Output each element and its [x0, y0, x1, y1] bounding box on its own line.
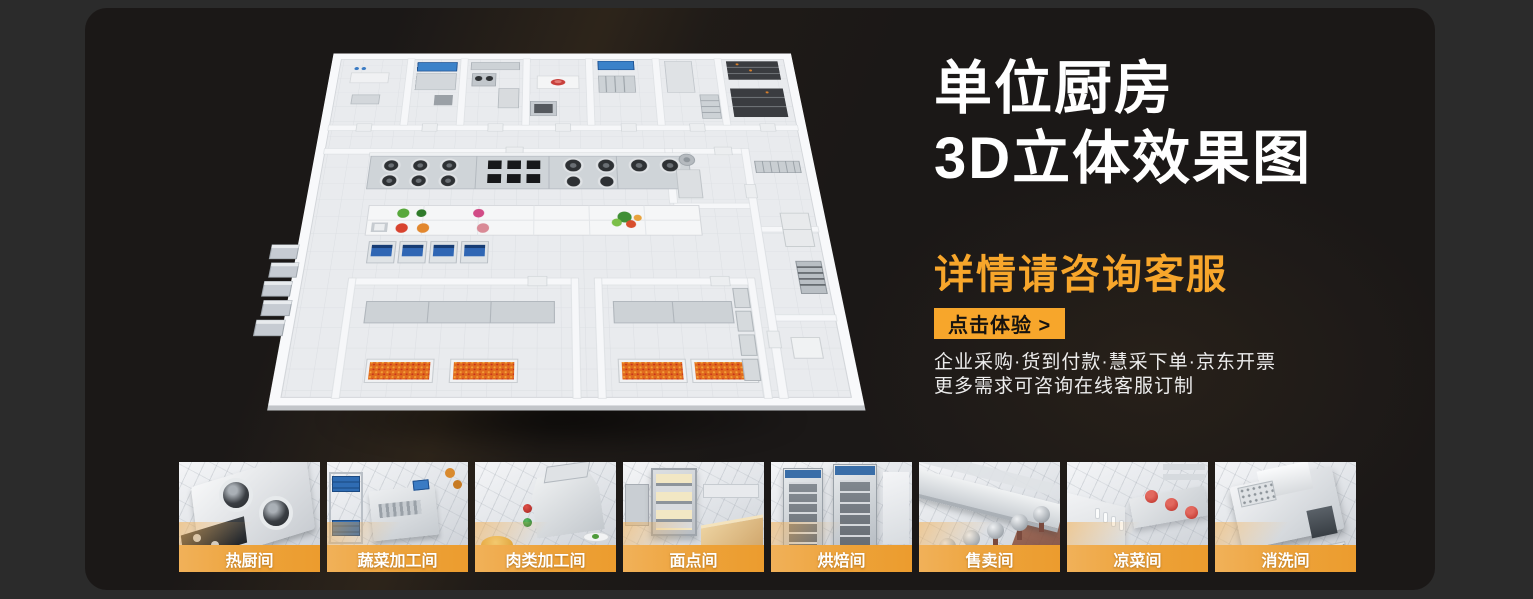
produce: [445, 468, 455, 478]
room-label: 肉类加工间: [505, 547, 585, 571]
room-label: 热厨间: [225, 547, 273, 571]
headline-line1: 单位厨房: [934, 56, 1174, 122]
stool: [1033, 506, 1050, 523]
cta-button[interactable]: 点击体验 >: [934, 308, 1065, 339]
gallery-item-serving-room[interactable]: 售卖间: [919, 462, 1060, 572]
wall-shelf: [1163, 464, 1205, 470]
red-dome-plate: [1145, 490, 1158, 503]
blue-crates: [332, 476, 360, 492]
building: [238, 56, 865, 410]
oven-racks: [840, 480, 870, 552]
produce: [453, 480, 462, 489]
room-label-band: 凉菜间: [1067, 545, 1208, 572]
machine-screen: [413, 479, 430, 491]
room-label: 面点间: [669, 547, 717, 571]
room-label: 消洗间: [1261, 547, 1309, 571]
dishwasher-opening: [1306, 506, 1337, 539]
oven-control-strip: [835, 466, 875, 475]
room-label-band: 肉类加工间: [475, 545, 616, 572]
room-label: 凉菜间: [1113, 547, 1161, 571]
red-dome-plate: [1185, 506, 1198, 519]
prep-table: [365, 205, 702, 235]
red-dome-plate: [1165, 498, 1178, 511]
subtitle: 详情请咨询客服: [934, 242, 1228, 300]
side-cabinet: [625, 484, 649, 526]
room-label: 烘焙间: [817, 547, 865, 571]
gallery-item-vegetable-processing-room[interactable]: 蔬菜加工间: [327, 462, 468, 572]
banner-page: 单位厨房 3D立体效果图 详情请咨询客服 点击体验 > 企业采购·货到付款·慧采…: [0, 0, 1533, 599]
room-label-band: 消洗间: [1215, 545, 1356, 572]
wall-shelf: [1163, 474, 1205, 480]
gallery-item-washing-room[interactable]: 消洗间: [1215, 462, 1356, 572]
room-label-band: 面点间: [623, 545, 764, 572]
room-gallery: 热厨间 蔬菜加工间 肉类加工间: [179, 462, 1356, 572]
plate-food: [592, 534, 599, 539]
gallery-item-baking-room[interactable]: 烘焙间: [771, 462, 912, 572]
room-label: 蔬菜加工间: [357, 547, 437, 571]
wok-pot: [259, 496, 293, 530]
bottle: [1095, 508, 1100, 519]
service-note-line1: 企业采购·货到付款·慧采下单·京东开票: [934, 351, 1276, 375]
red-button: [523, 504, 532, 513]
cook-line: [365, 153, 694, 189]
service-note-line2: 更多需求可咨询在线客服订制: [934, 375, 1194, 399]
corridor-wall: [883, 472, 909, 544]
back-counter: [703, 484, 759, 498]
gallery-item-hot-kitchen-room[interactable]: 热厨间: [179, 462, 320, 572]
stool: [1011, 514, 1028, 531]
oven-control-strip: [785, 470, 821, 478]
floorplan-svg: [231, 52, 866, 411]
wok-pot: [219, 478, 253, 512]
room-label-band: 蔬菜加工间: [327, 545, 468, 572]
room-label-band: 售卖间: [919, 545, 1060, 572]
room-label: 售卖间: [965, 547, 1013, 571]
kitchen-3d-floorplan: [231, 52, 866, 411]
gallery-item-cold-dish-room[interactable]: 凉菜间: [1067, 462, 1208, 572]
room-label-band: 烘焙间: [771, 545, 912, 572]
gallery-item-meat-processing-room[interactable]: 肉类加工间: [475, 462, 616, 572]
gallery-item-pastry-room[interactable]: 面点间: [623, 462, 764, 572]
room-label-band: 热厨间: [179, 545, 320, 572]
headline-line2: 3D立体效果图: [934, 126, 1312, 192]
